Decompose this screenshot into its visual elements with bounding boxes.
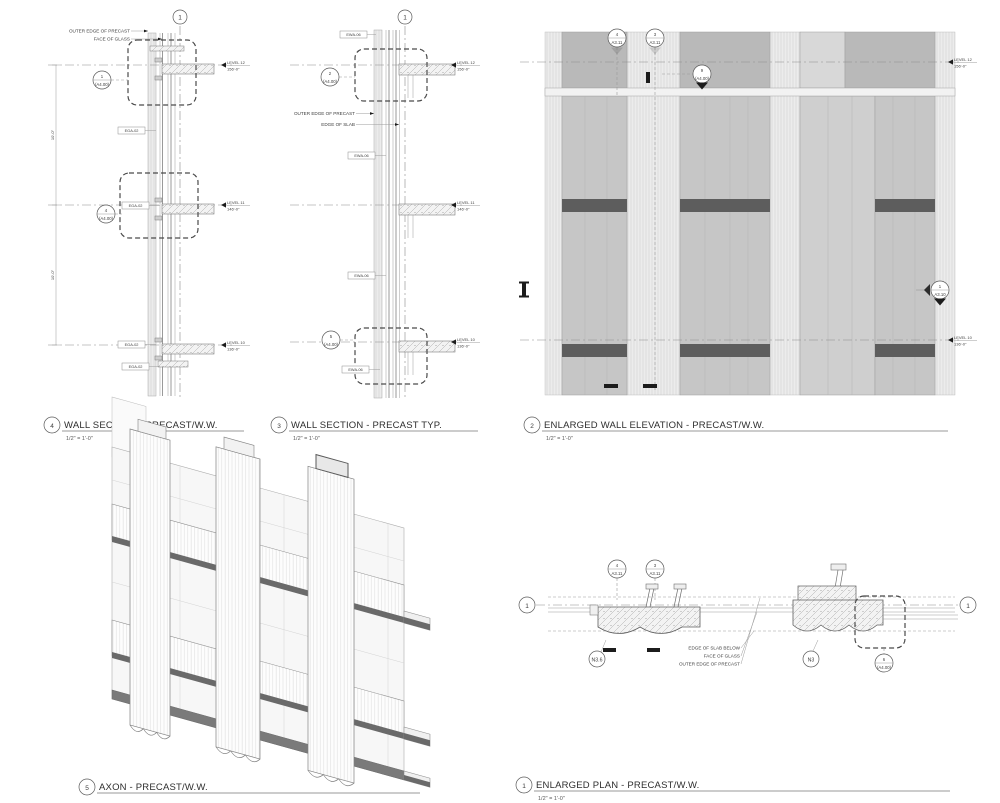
svg-text:LEVEL 10: LEVEL 10 [457,337,476,342]
svg-text:(A4.00): (A4.00) [695,76,710,81]
svg-text:AXON - PRECAST/W.W.: AXON - PRECAST/W.W. [99,782,208,793]
svg-text:OUTER EDGE OF PRECAST: OUTER EDGE OF PRECAST [679,662,740,667]
svg-text:5: 5 [85,785,89,792]
section-typ-leaders: OUTER EDGE OF PRECAST EDGE OF SLAB [294,111,399,127]
svg-text:FACE OF GLASS: FACE OF GLASS [704,654,740,659]
svg-text:LEVEL 10: LEVEL 10 [954,335,973,340]
svg-text:A3.11: A3.11 [612,40,624,45]
view-axon: 5 AXON - PRECAST/W.W. [79,397,430,803]
svg-text:A3.11: A3.11 [650,40,662,45]
svg-text:EWA-06: EWA-06 [354,273,368,278]
view-title-2: 2 ENLARGED WALL ELEVATION - PRECAST/W.W.… [524,417,948,442]
leader-face-of-glass: FACE OF GLASS [94,37,130,42]
plan-marker-4: 4 A3.11 [608,560,626,600]
svg-text:136'-0": 136'-0" [954,342,967,347]
drawing-sheet: { "views": { "section_ww": { "title_num"… [0,0,1000,803]
callout-4-a400: 4 (A4.00) [97,205,122,223]
svg-text:3: 3 [277,423,281,430]
svg-text:EDGE OF SLAB: EDGE OF SLAB [321,122,355,127]
svg-text:N3: N3 [808,658,815,664]
svg-text:(A4.00): (A4.00) [324,342,339,347]
svg-text:OUTER EDGE OF PRECAST: OUTER EDGE OF PRECAST [294,111,355,116]
svg-text:LEVEL 12: LEVEL 12 [457,60,476,65]
svg-text:1: 1 [966,603,970,610]
svg-text:A3.11: A3.11 [650,571,662,576]
axon-pilasters [130,403,354,792]
section-line-tick [647,648,660,652]
svg-text:N3.6: N3.6 [592,658,603,664]
svg-text:LEVEL 11: LEVEL 11 [457,200,475,205]
svg-text:156'-0": 156'-0" [954,64,967,69]
svg-text:(A4.00): (A4.00) [95,82,110,87]
view-enlarged-elevation: 4 A3.11 3 A3.11 9 (A4.00) 1 A3.10 LEVEL … [519,29,977,442]
svg-text:146'-0": 146'-0" [457,207,470,212]
svg-text:ENLARGED PLAN - PRECAST/W.W.: ENLARGED PLAN - PRECAST/W.W. [536,780,699,791]
view-title-3: 3 WALL SECTION - PRECAST TYP. 1/2" = 1'-… [271,417,478,442]
view-wall-section-typ: 1 2 (A4.00) 5 (A4.00) EWA-06 EWA-06 [271,10,480,442]
svg-text:A3.10: A3.10 [934,292,946,297]
svg-text:LEVEL 10: LEVEL 10 [227,340,246,345]
svg-text:EWA-06: EWA-06 [354,153,368,158]
svg-text:EGA-02: EGA-02 [129,364,143,369]
svg-text:156'-0": 156'-0" [227,67,240,72]
svg-text:EGA-02: EGA-02 [125,342,139,347]
svg-text:EDGE OF SLAB BELOW: EDGE OF SLAB BELOW [688,646,740,651]
view-enlarged-plan: 1 1 4 A3.11 3 A3.11 6 (A [516,560,976,802]
grid-bubble-n36: N3.6 [589,640,606,667]
svg-text:10'-0": 10'-0" [50,129,55,140]
callout-1-a400: 1 (A4.00) [93,71,128,89]
detail-callout-box [355,328,427,384]
plan-panel-1 [590,584,700,634]
svg-text:2: 2 [530,423,534,430]
view-wall-section-ww: 1 OUTER EDGE OF PRECAST FACE OF GLASS 1 … [44,10,250,442]
grid-bubble-label: 1 [178,15,182,22]
callout-6-a400: 6 (A4.00) [875,648,893,672]
svg-text:EWA-06: EWA-06 [348,367,362,372]
plan-panel-2 [793,564,958,631]
callout-2-a400: 2 (A4.00) [321,68,355,86]
level-markers: LEVEL 12 156'-0" LEVEL 11 146'-0" LEVEL … [451,60,480,349]
svg-text:LEVEL 12: LEVEL 12 [954,57,973,62]
level-markers: LEVEL 12 156'-0" LEVEL 11 146'-0" LEVEL … [221,60,250,352]
svg-text:1/2" = 1'-0": 1/2" = 1'-0" [546,436,573,442]
svg-text:A3.11: A3.11 [612,571,624,576]
svg-text:(A4.00): (A4.00) [323,79,338,84]
section-line-tick [603,648,616,652]
leader-outer-edge-precast: OUTER EDGE OF PRECAST [69,29,130,34]
grid-bubble-n3: N3 [803,640,819,667]
svg-text:10'-0": 10'-0" [50,269,55,280]
svg-text:146'-0": 146'-0" [227,207,240,212]
svg-text:1/2" = 1'-0": 1/2" = 1'-0" [293,436,320,442]
svg-text:1/2" = 1'-0": 1/2" = 1'-0" [538,796,565,802]
svg-text:LEVEL 12: LEVEL 12 [227,60,246,65]
sheet-canvas: 1 OUTER EDGE OF PRECAST FACE OF GLASS 1 … [0,0,1000,803]
svg-text:(A4.00): (A4.00) [877,665,892,670]
svg-text:1: 1 [522,783,526,790]
svg-text:4: 4 [50,423,54,430]
svg-text:(A4.00): (A4.00) [99,216,114,221]
svg-text:ENLARGED WALL ELEVATION - PREC: ENLARGED WALL ELEVATION - PRECAST/W.W. [544,420,764,431]
svg-text:EGA-02: EGA-02 [129,203,143,208]
svg-text:LEVEL 11: LEVEL 11 [227,200,245,205]
svg-text:136'-0": 136'-0" [227,347,240,352]
svg-text:EGA-02: EGA-02 [125,128,139,133]
view-title-1: 1 ENLARGED PLAN - PRECAST/W.W. 1/2" = 1'… [516,777,950,802]
svg-text:WALL SECTION - PRECAST TYP.: WALL SECTION - PRECAST TYP. [291,420,442,431]
svg-text:EWA-06: EWA-06 [346,32,360,37]
grid-bubble-label: 1 [403,15,407,22]
callout-5-a400: 5 (A4.00) [322,331,355,349]
svg-text:136'-0": 136'-0" [457,344,470,349]
svg-text:1/2" = 1'-0": 1/2" = 1'-0" [66,436,93,442]
view-title-5: 5 AXON - PRECAST/W.W. [79,779,420,795]
svg-text:1: 1 [525,603,529,610]
svg-text:156'-0": 156'-0" [457,67,470,72]
